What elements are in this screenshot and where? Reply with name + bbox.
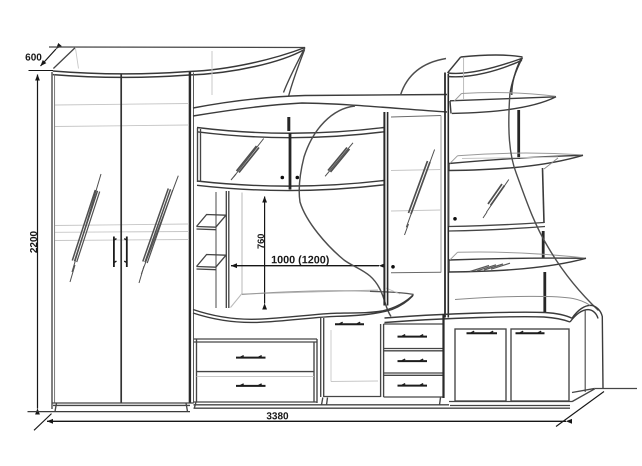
svg-text:600: 600 — [25, 52, 42, 63]
svg-text:2200: 2200 — [29, 230, 40, 253]
svg-text:1000 (1200): 1000 (1200) — [271, 254, 330, 266]
